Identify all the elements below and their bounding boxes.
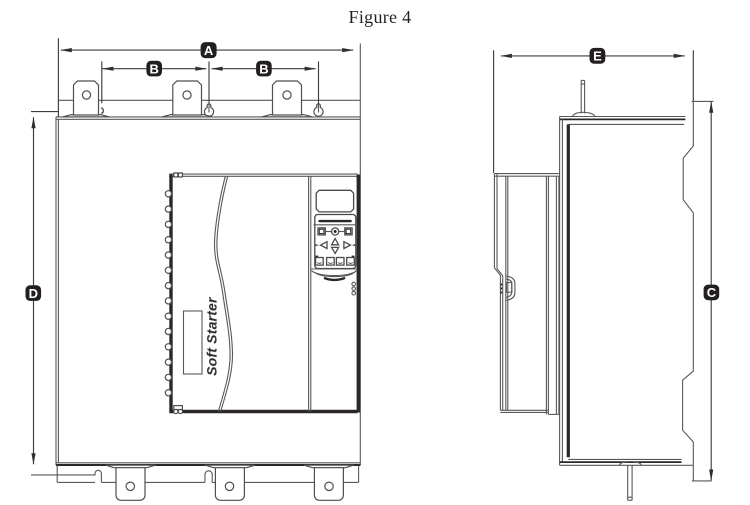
svg-text:Figure 4: Figure 4 [349,7,412,27]
svg-text:D: D [29,286,38,301]
svg-text:B: B [150,61,159,76]
svg-text:Soft Starter: Soft Starter [204,296,220,376]
svg-text:B: B [259,61,268,76]
svg-text:A: A [204,43,214,58]
svg-text:C: C [707,285,717,300]
svg-text:E: E [593,49,602,64]
